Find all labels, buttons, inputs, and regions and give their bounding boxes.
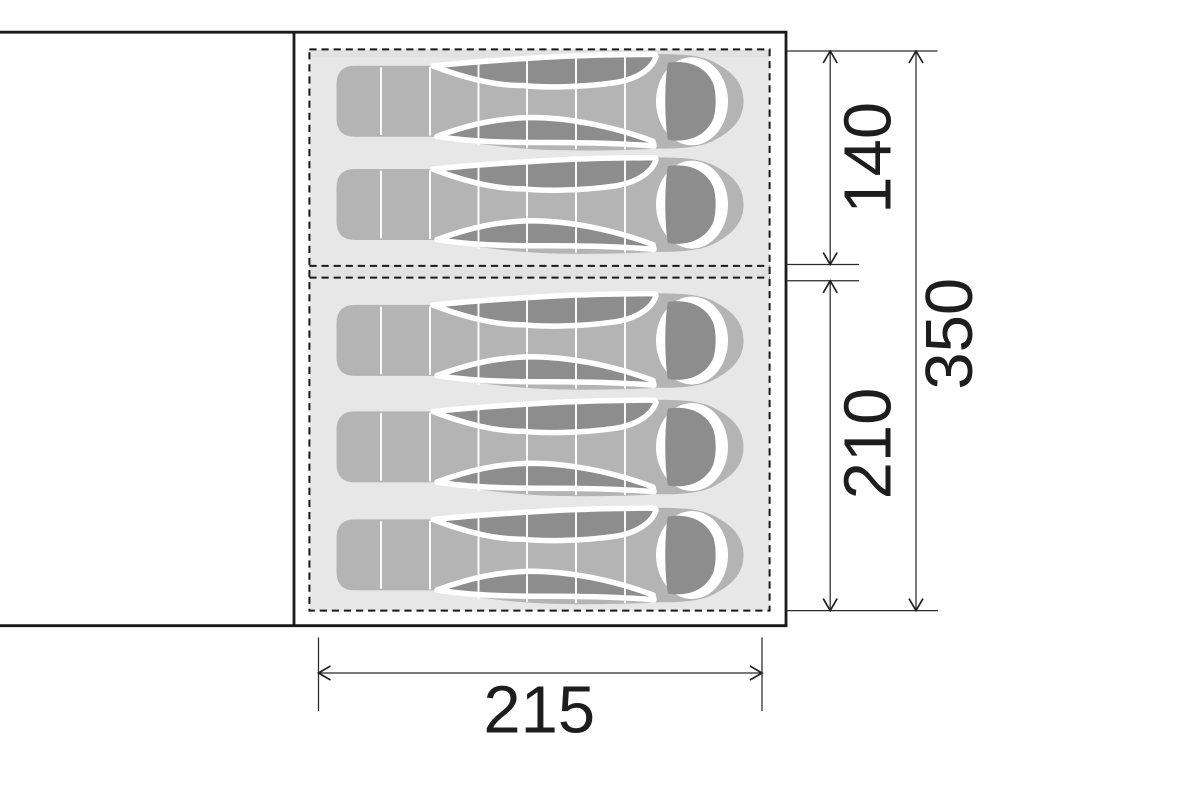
svg-text:140: 140 (830, 102, 905, 214)
svg-text:210: 210 (831, 388, 906, 500)
svg-text:215: 215 (483, 673, 595, 748)
svg-text:350: 350 (912, 278, 987, 390)
